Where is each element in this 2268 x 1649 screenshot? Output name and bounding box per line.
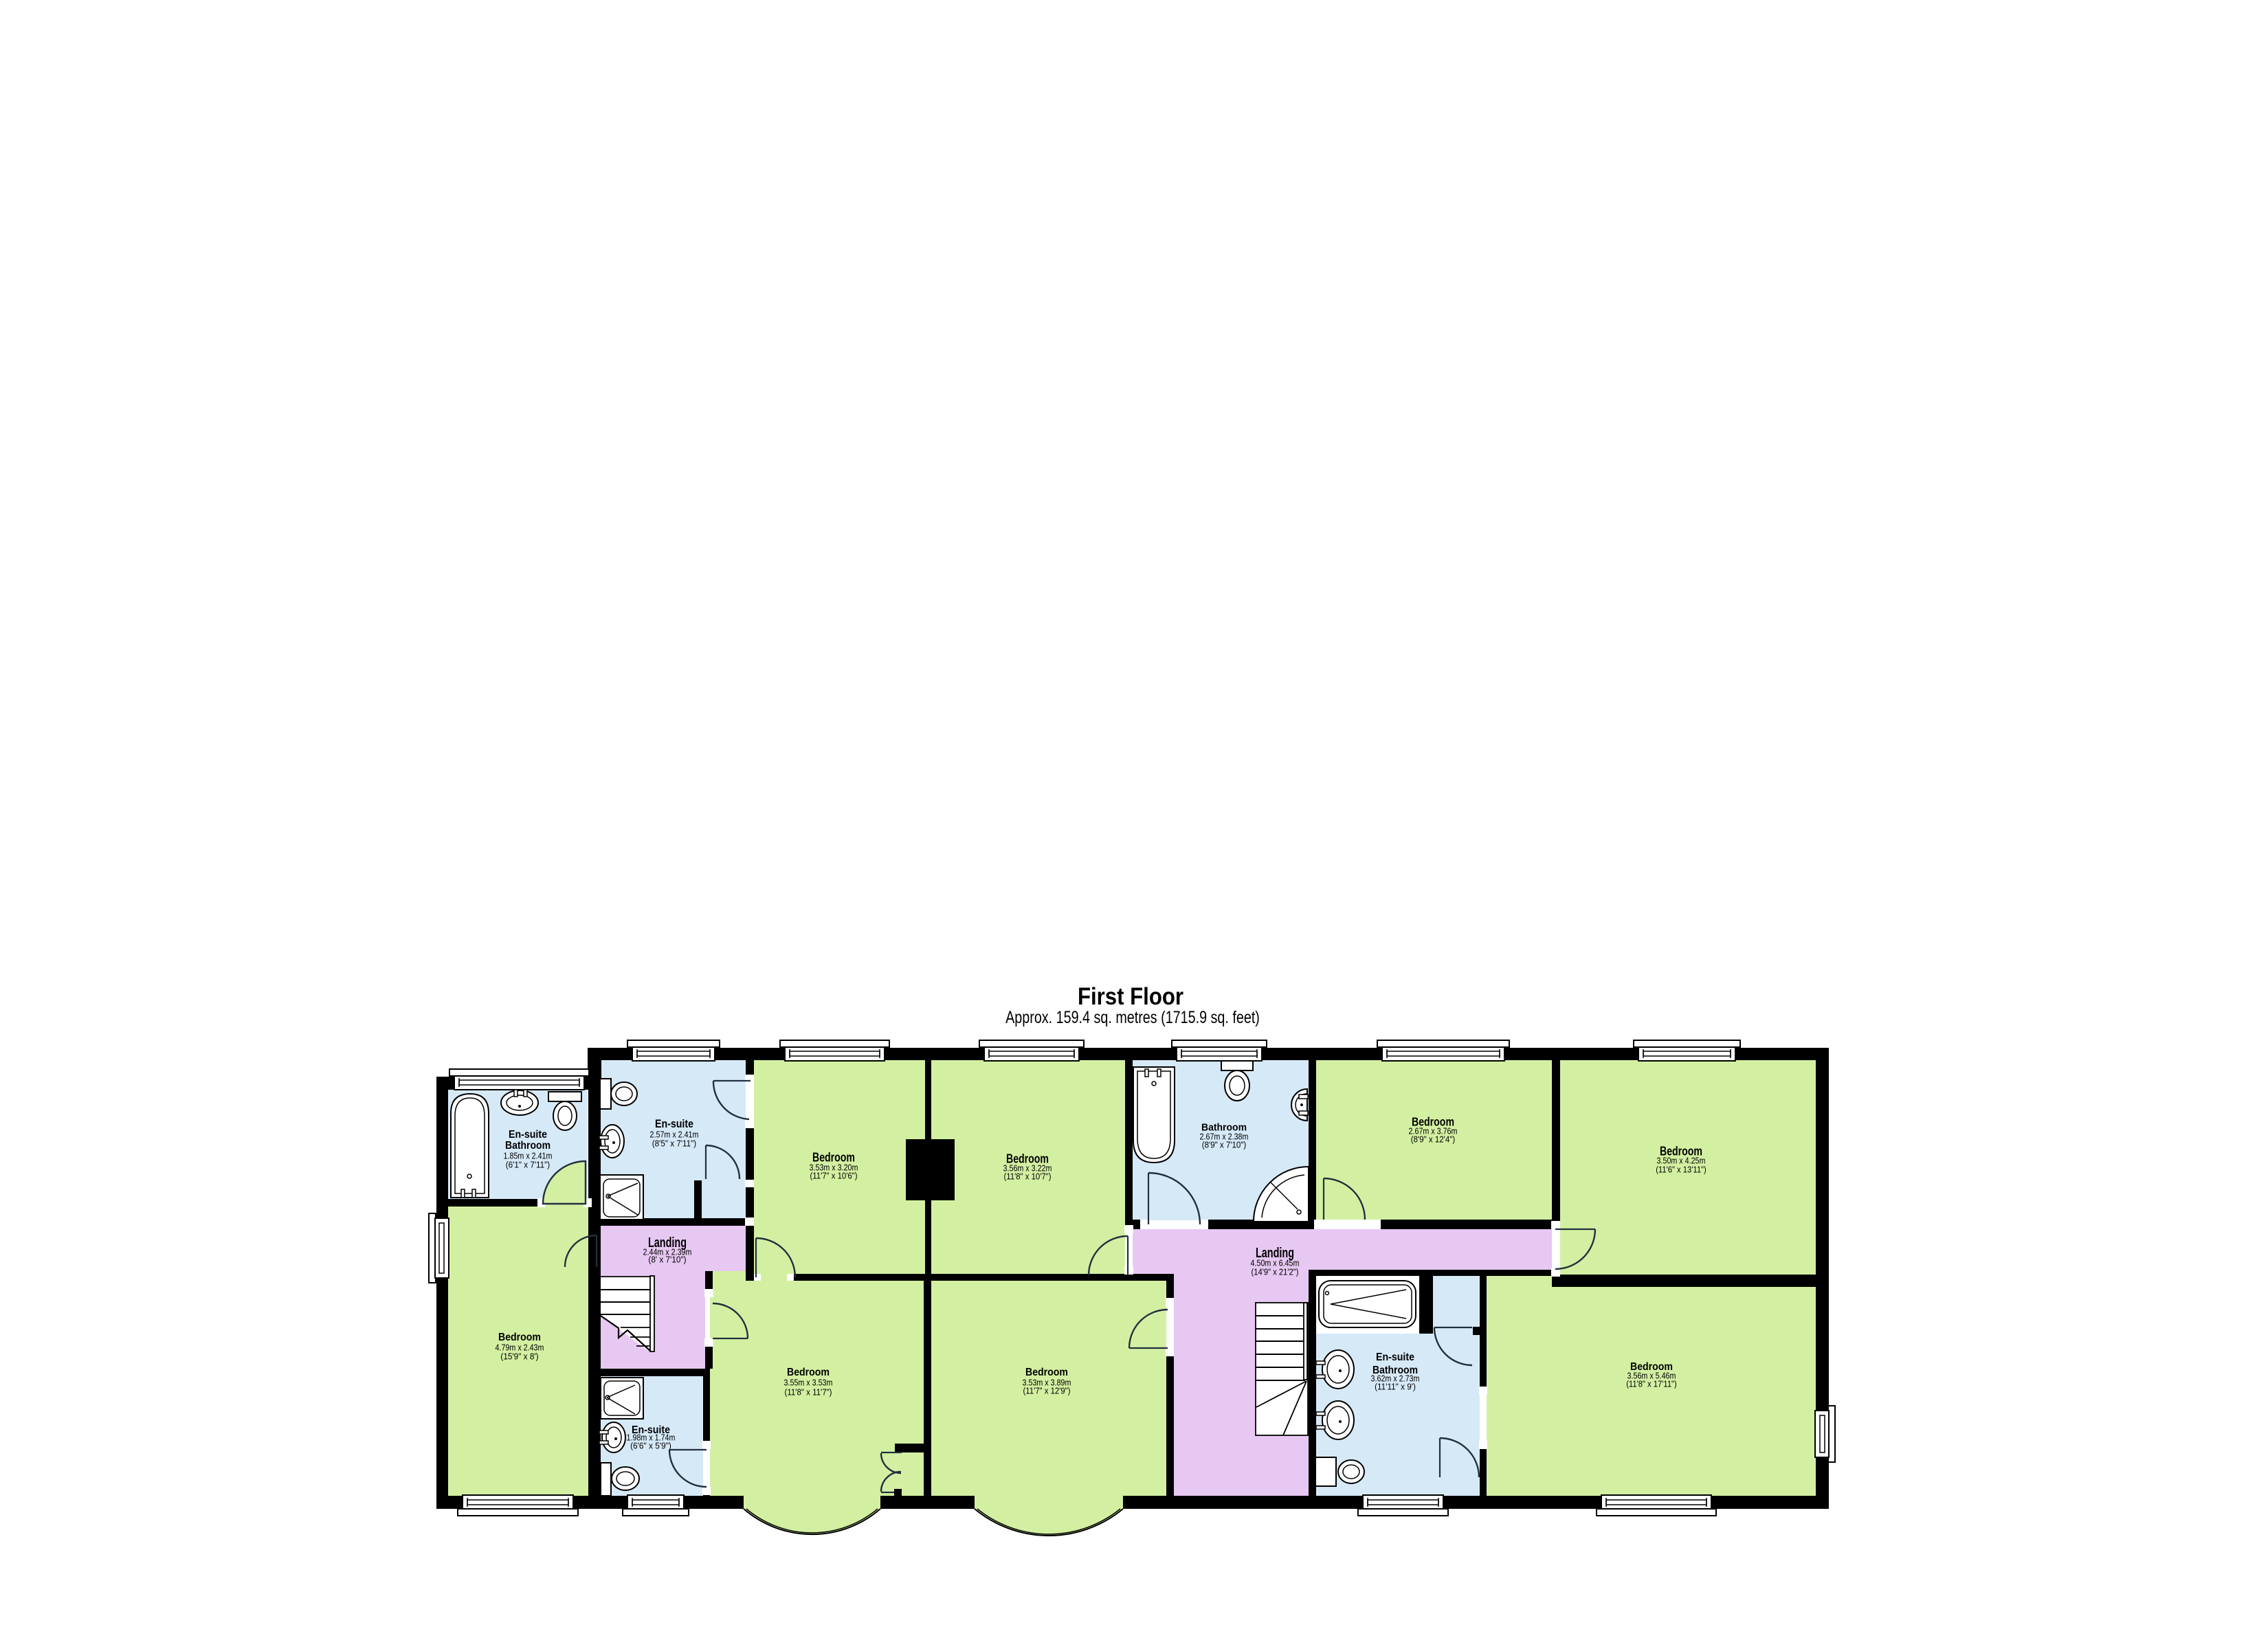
svg-text:(8'5" x 7'11"): (8'5" x 7'11") xyxy=(652,1139,696,1149)
svg-text:(11'8" x 11'7"): (11'8" x 11'7") xyxy=(785,1387,832,1398)
svg-text:(11'7" x 12'9"): (11'7" x 12'9") xyxy=(1023,1386,1071,1396)
svg-text:(14'9" x 21'2"): (14'9" x 21'2") xyxy=(1252,1267,1299,1277)
svg-text:(8'9" x 7'10"): (8'9" x 7'10") xyxy=(1202,1141,1246,1150)
svg-text:2.57m x 2.41m: 2.57m x 2.41m xyxy=(650,1130,699,1140)
svg-text:(11'8" x 10'7"): (11'8" x 10'7") xyxy=(1004,1171,1052,1182)
svg-text:Approx. 159.4 sq. metres (1715: Approx. 159.4 sq. metres (1715.9 sq. fee… xyxy=(1005,1008,1260,1027)
svg-text:Bathroom: Bathroom xyxy=(505,1140,551,1152)
svg-text:En-suite: En-suite xyxy=(1376,1351,1414,1363)
svg-text:(15'9" x 8'): (15'9" x 8') xyxy=(500,1352,538,1362)
svg-text:First Floor: First Floor xyxy=(1078,983,1183,1010)
svg-text:En-suite: En-suite xyxy=(655,1117,693,1130)
svg-text:(11'8" x 17'11"): (11'8" x 17'11") xyxy=(1626,1380,1677,1389)
svg-text:(6'6" x 5'9"): (6'6" x 5'9") xyxy=(630,1442,671,1451)
svg-text:(11'6" x 13'11"): (11'6" x 13'11") xyxy=(1656,1165,1706,1175)
svg-text:(11'7" x 10'6"): (11'7" x 10'6") xyxy=(810,1171,858,1181)
svg-text:Bedroom: Bedroom xyxy=(498,1332,541,1343)
svg-text:En-suite: En-suite xyxy=(509,1129,547,1141)
svg-text:(8' x 7'10"): (8' x 7'10") xyxy=(648,1255,686,1265)
svg-text:3.55m x 3.53m: 3.55m x 3.53m xyxy=(784,1378,833,1388)
svg-text:(11'11" x 9'): (11'11" x 9') xyxy=(1375,1382,1416,1392)
svg-text:(8'9" x 12'4"): (8'9" x 12'4") xyxy=(1411,1135,1455,1145)
svg-text:4.79m x 2.43m: 4.79m x 2.43m xyxy=(496,1343,544,1353)
svg-text:(6'1" x 7'11"): (6'1" x 7'11") xyxy=(506,1160,550,1170)
svg-text:1.85m x 2.41m: 1.85m x 2.41m xyxy=(504,1152,553,1161)
svg-text:Bedroom: Bedroom xyxy=(787,1367,830,1378)
svg-text:Bedroom: Bedroom xyxy=(1025,1367,1068,1378)
